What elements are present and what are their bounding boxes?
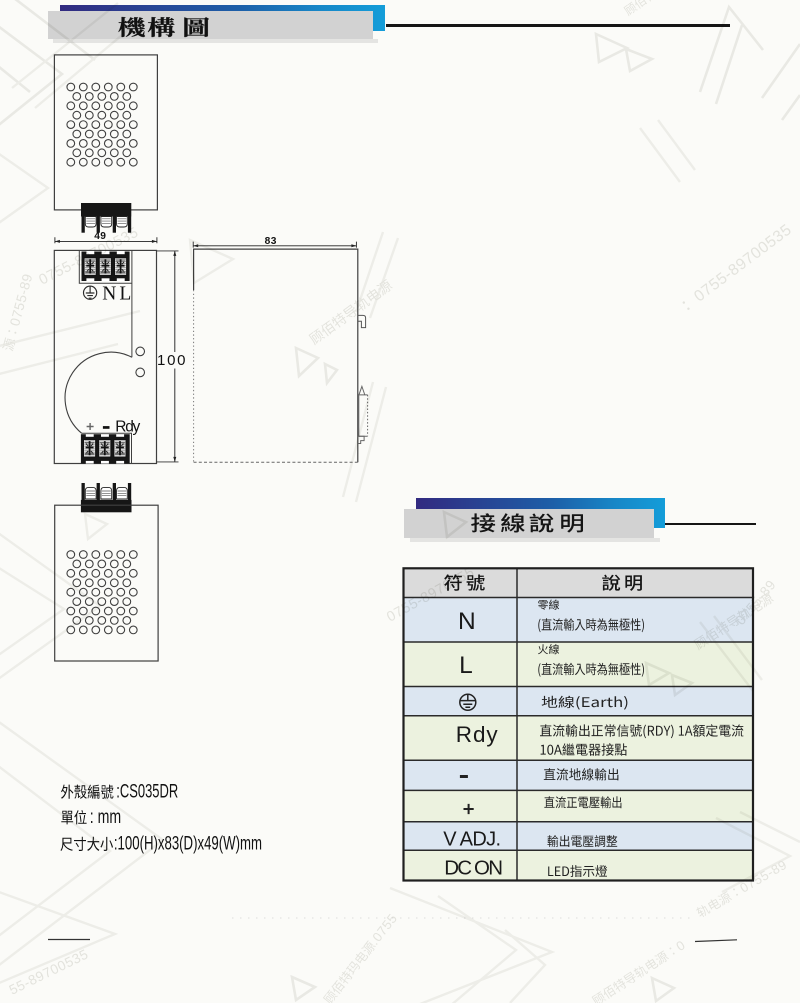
svg-text:55-89700535: 55-89700535 (7, 946, 91, 997)
svg-text:0755-89: 0755-89 (733, 577, 779, 628)
svg-text:0755-89: 0755-89 (7, 272, 35, 328)
svg-text:0: 0 (673, 937, 688, 954)
svg-text:0755-8970055: 0755-8970055 (384, 564, 477, 625)
svg-text:0755-89: 0755-89 (737, 857, 789, 896)
svg-text:0755-89700535: 0755-89700535 (37, 225, 142, 289)
svg-text:.0755: .0755 (367, 911, 401, 948)
svg-text:：0755-89700535: ：0755-89700535 (678, 221, 795, 315)
